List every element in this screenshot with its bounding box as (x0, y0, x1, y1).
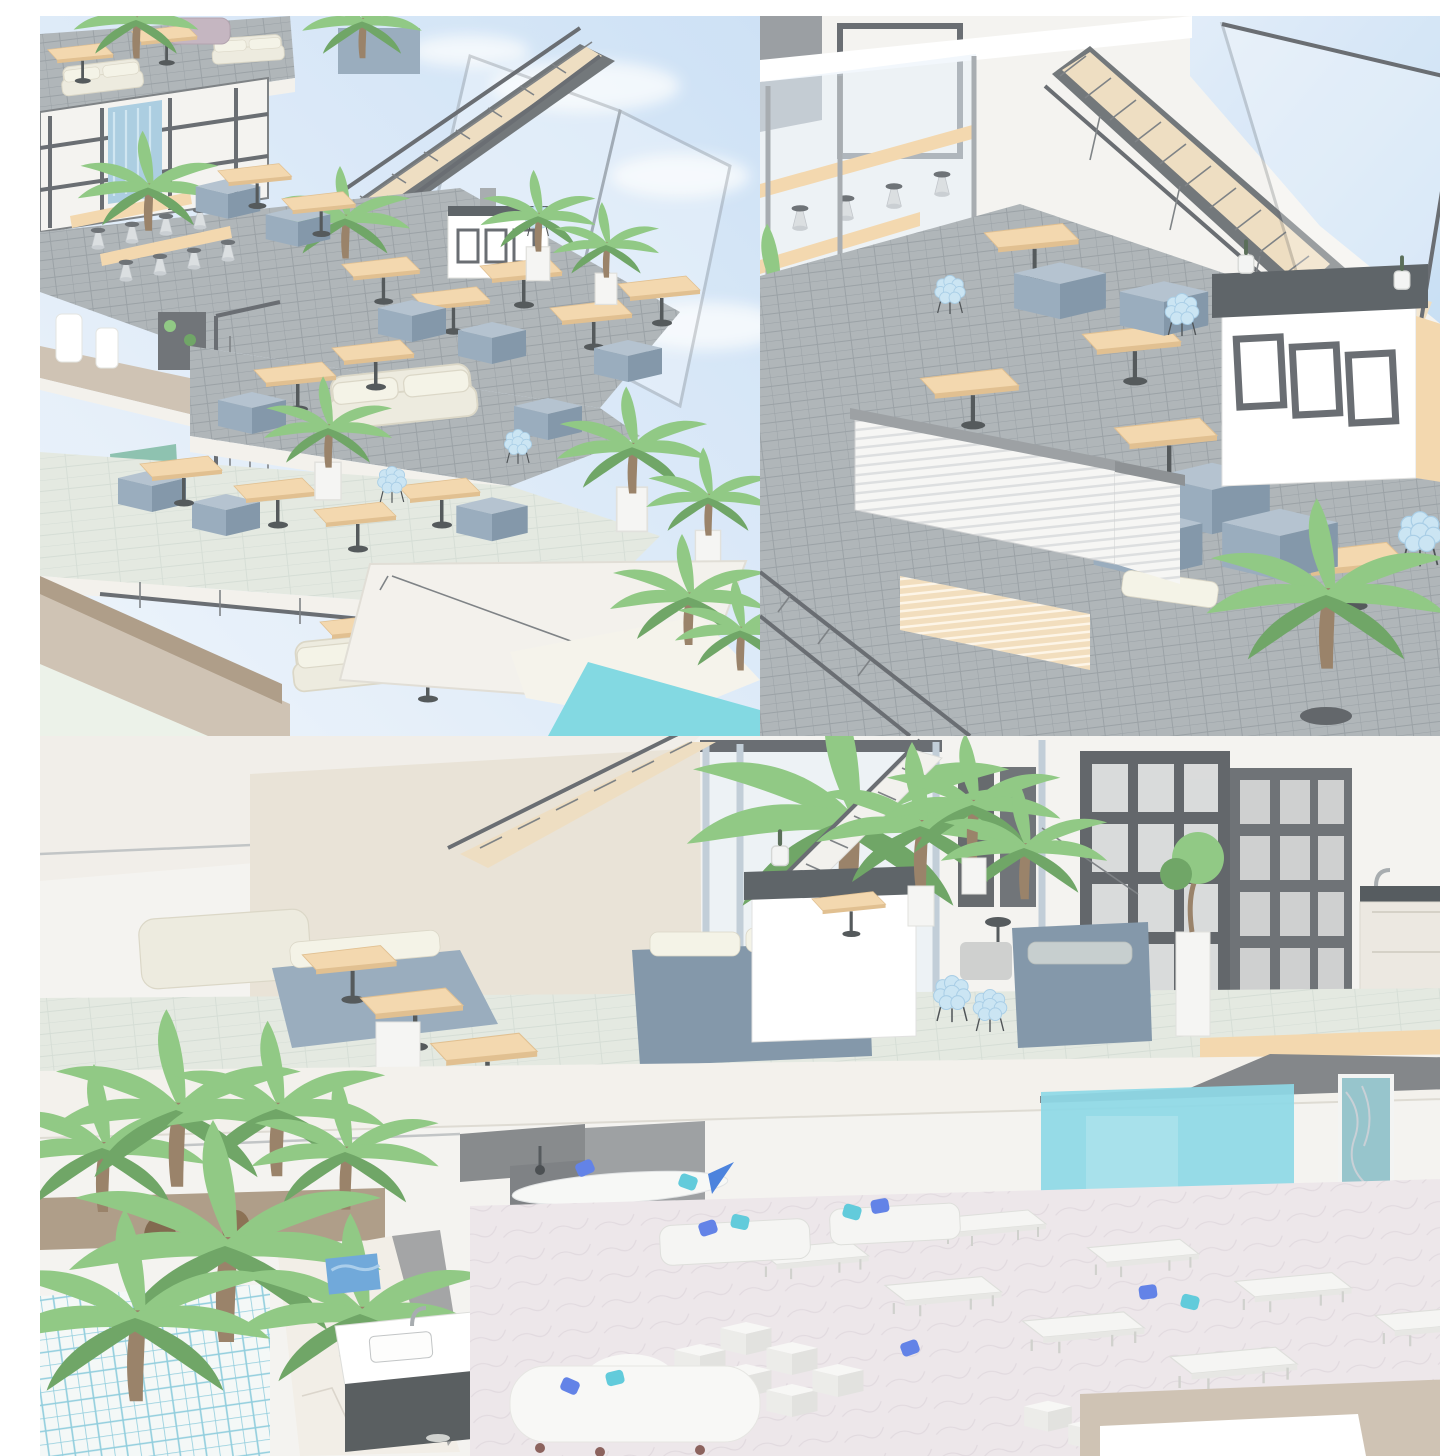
blue-tufted-chair (934, 976, 971, 1023)
blue-tufted-chair (378, 466, 407, 502)
blue-tufted-chair (973, 990, 1007, 1033)
bar-counter (1212, 239, 1440, 486)
render-panel-topfloor (760, 16, 1440, 736)
blue-tufted-chair (504, 429, 531, 463)
ocean-picture (325, 1253, 380, 1294)
white-pedestal (376, 1022, 420, 1070)
render-collage (0, 0, 1440, 1440)
blue-tufted-chair (935, 275, 965, 313)
palm-pot (1300, 707, 1352, 725)
blue-highback-sofa (1012, 922, 1152, 1048)
render-panel-overview (40, 16, 760, 736)
foreground-sofa (510, 1354, 760, 1456)
bar-side-shelf (1416, 316, 1440, 486)
white-vase (96, 328, 118, 368)
blue-tufted-chair (1165, 294, 1199, 337)
kitchen-sink (335, 1308, 482, 1452)
marble-art-panel (1340, 1076, 1392, 1194)
gray-bench (960, 942, 1012, 980)
white-vase (56, 314, 82, 362)
white-planter (1176, 932, 1210, 1036)
render-panel-crosssection (40, 736, 1440, 1456)
